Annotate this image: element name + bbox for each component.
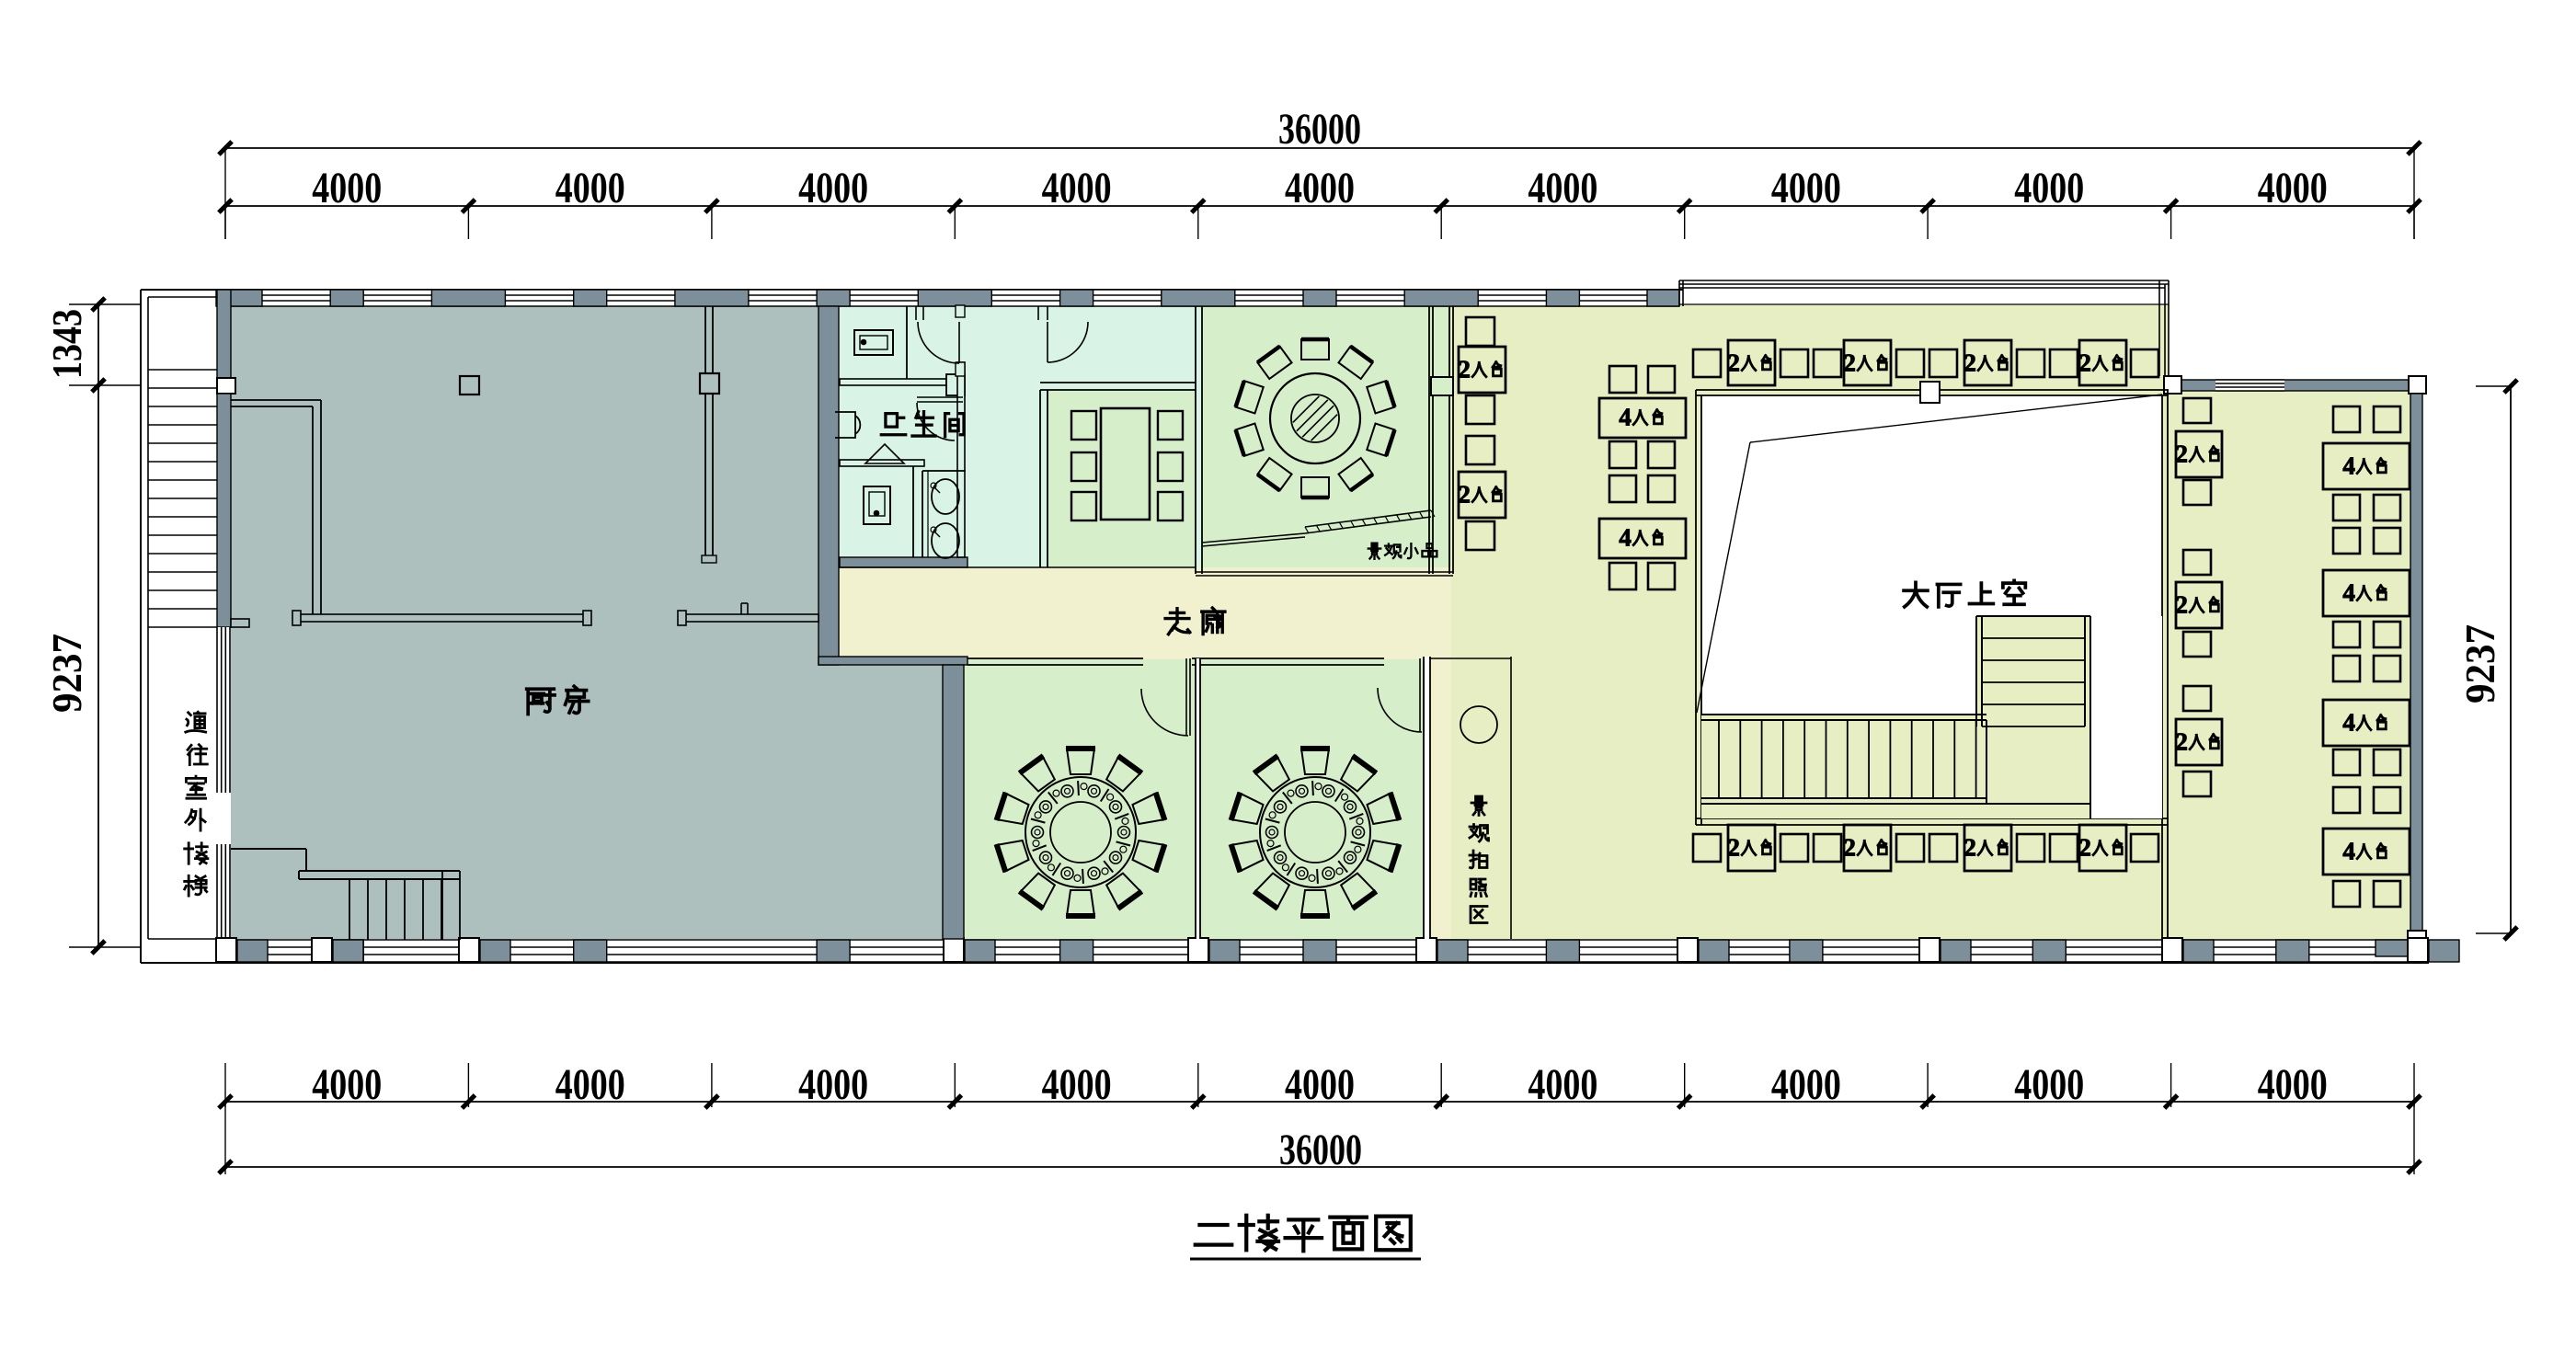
svg-text:4000: 4000 bbox=[1528, 1060, 1597, 1109]
svg-text:2: 2 bbox=[2175, 727, 2188, 755]
svg-text:4000: 4000 bbox=[1285, 1060, 1355, 1109]
svg-text:1343: 1343 bbox=[43, 309, 90, 379]
svg-text:4000: 4000 bbox=[1285, 164, 1355, 212]
svg-text:9237: 9237 bbox=[2456, 624, 2503, 703]
svg-text:4000: 4000 bbox=[312, 1060, 382, 1109]
svg-text:2: 2 bbox=[2175, 590, 2188, 618]
svg-text:4000: 4000 bbox=[555, 1060, 625, 1109]
svg-text:2: 2 bbox=[1727, 833, 1740, 861]
svg-text:4000: 4000 bbox=[1528, 164, 1597, 212]
svg-text:4000: 4000 bbox=[2014, 1060, 2084, 1109]
svg-text:4000: 4000 bbox=[312, 164, 382, 212]
svg-text:4: 4 bbox=[2342, 452, 2355, 479]
svg-text:4: 4 bbox=[1619, 523, 1631, 551]
svg-text:36000: 36000 bbox=[1278, 105, 1361, 154]
svg-text:4000: 4000 bbox=[2258, 1060, 2328, 1109]
svg-text:2: 2 bbox=[1458, 355, 1471, 383]
svg-text:4000: 4000 bbox=[1771, 164, 1841, 212]
svg-text:2: 2 bbox=[1963, 833, 1976, 861]
svg-text:2: 2 bbox=[2078, 349, 2091, 376]
svg-text:4: 4 bbox=[2342, 837, 2355, 864]
svg-text:36000: 36000 bbox=[1279, 1126, 1362, 1174]
svg-text:4000: 4000 bbox=[798, 164, 868, 212]
svg-text:2: 2 bbox=[1843, 349, 1856, 376]
svg-text:4: 4 bbox=[2342, 708, 2355, 736]
svg-text:2: 2 bbox=[2175, 440, 2188, 467]
svg-text:4000: 4000 bbox=[1042, 1060, 1112, 1109]
svg-text:2: 2 bbox=[2078, 833, 2091, 861]
svg-text:2: 2 bbox=[1727, 349, 1740, 376]
svg-text:4000: 4000 bbox=[2258, 164, 2328, 212]
svg-text:2: 2 bbox=[1458, 480, 1471, 508]
svg-text:4000: 4000 bbox=[798, 1060, 868, 1109]
svg-text:4000: 4000 bbox=[1771, 1060, 1841, 1109]
svg-text:4: 4 bbox=[2342, 578, 2355, 606]
svg-text:2: 2 bbox=[1843, 833, 1856, 861]
svg-text:9237: 9237 bbox=[43, 634, 90, 713]
svg-text:4000: 4000 bbox=[1042, 164, 1112, 212]
svg-text:4000: 4000 bbox=[2014, 164, 2084, 212]
svg-text:2: 2 bbox=[1963, 349, 1976, 376]
svg-text:4000: 4000 bbox=[555, 164, 625, 212]
svg-text:4: 4 bbox=[1619, 403, 1631, 430]
